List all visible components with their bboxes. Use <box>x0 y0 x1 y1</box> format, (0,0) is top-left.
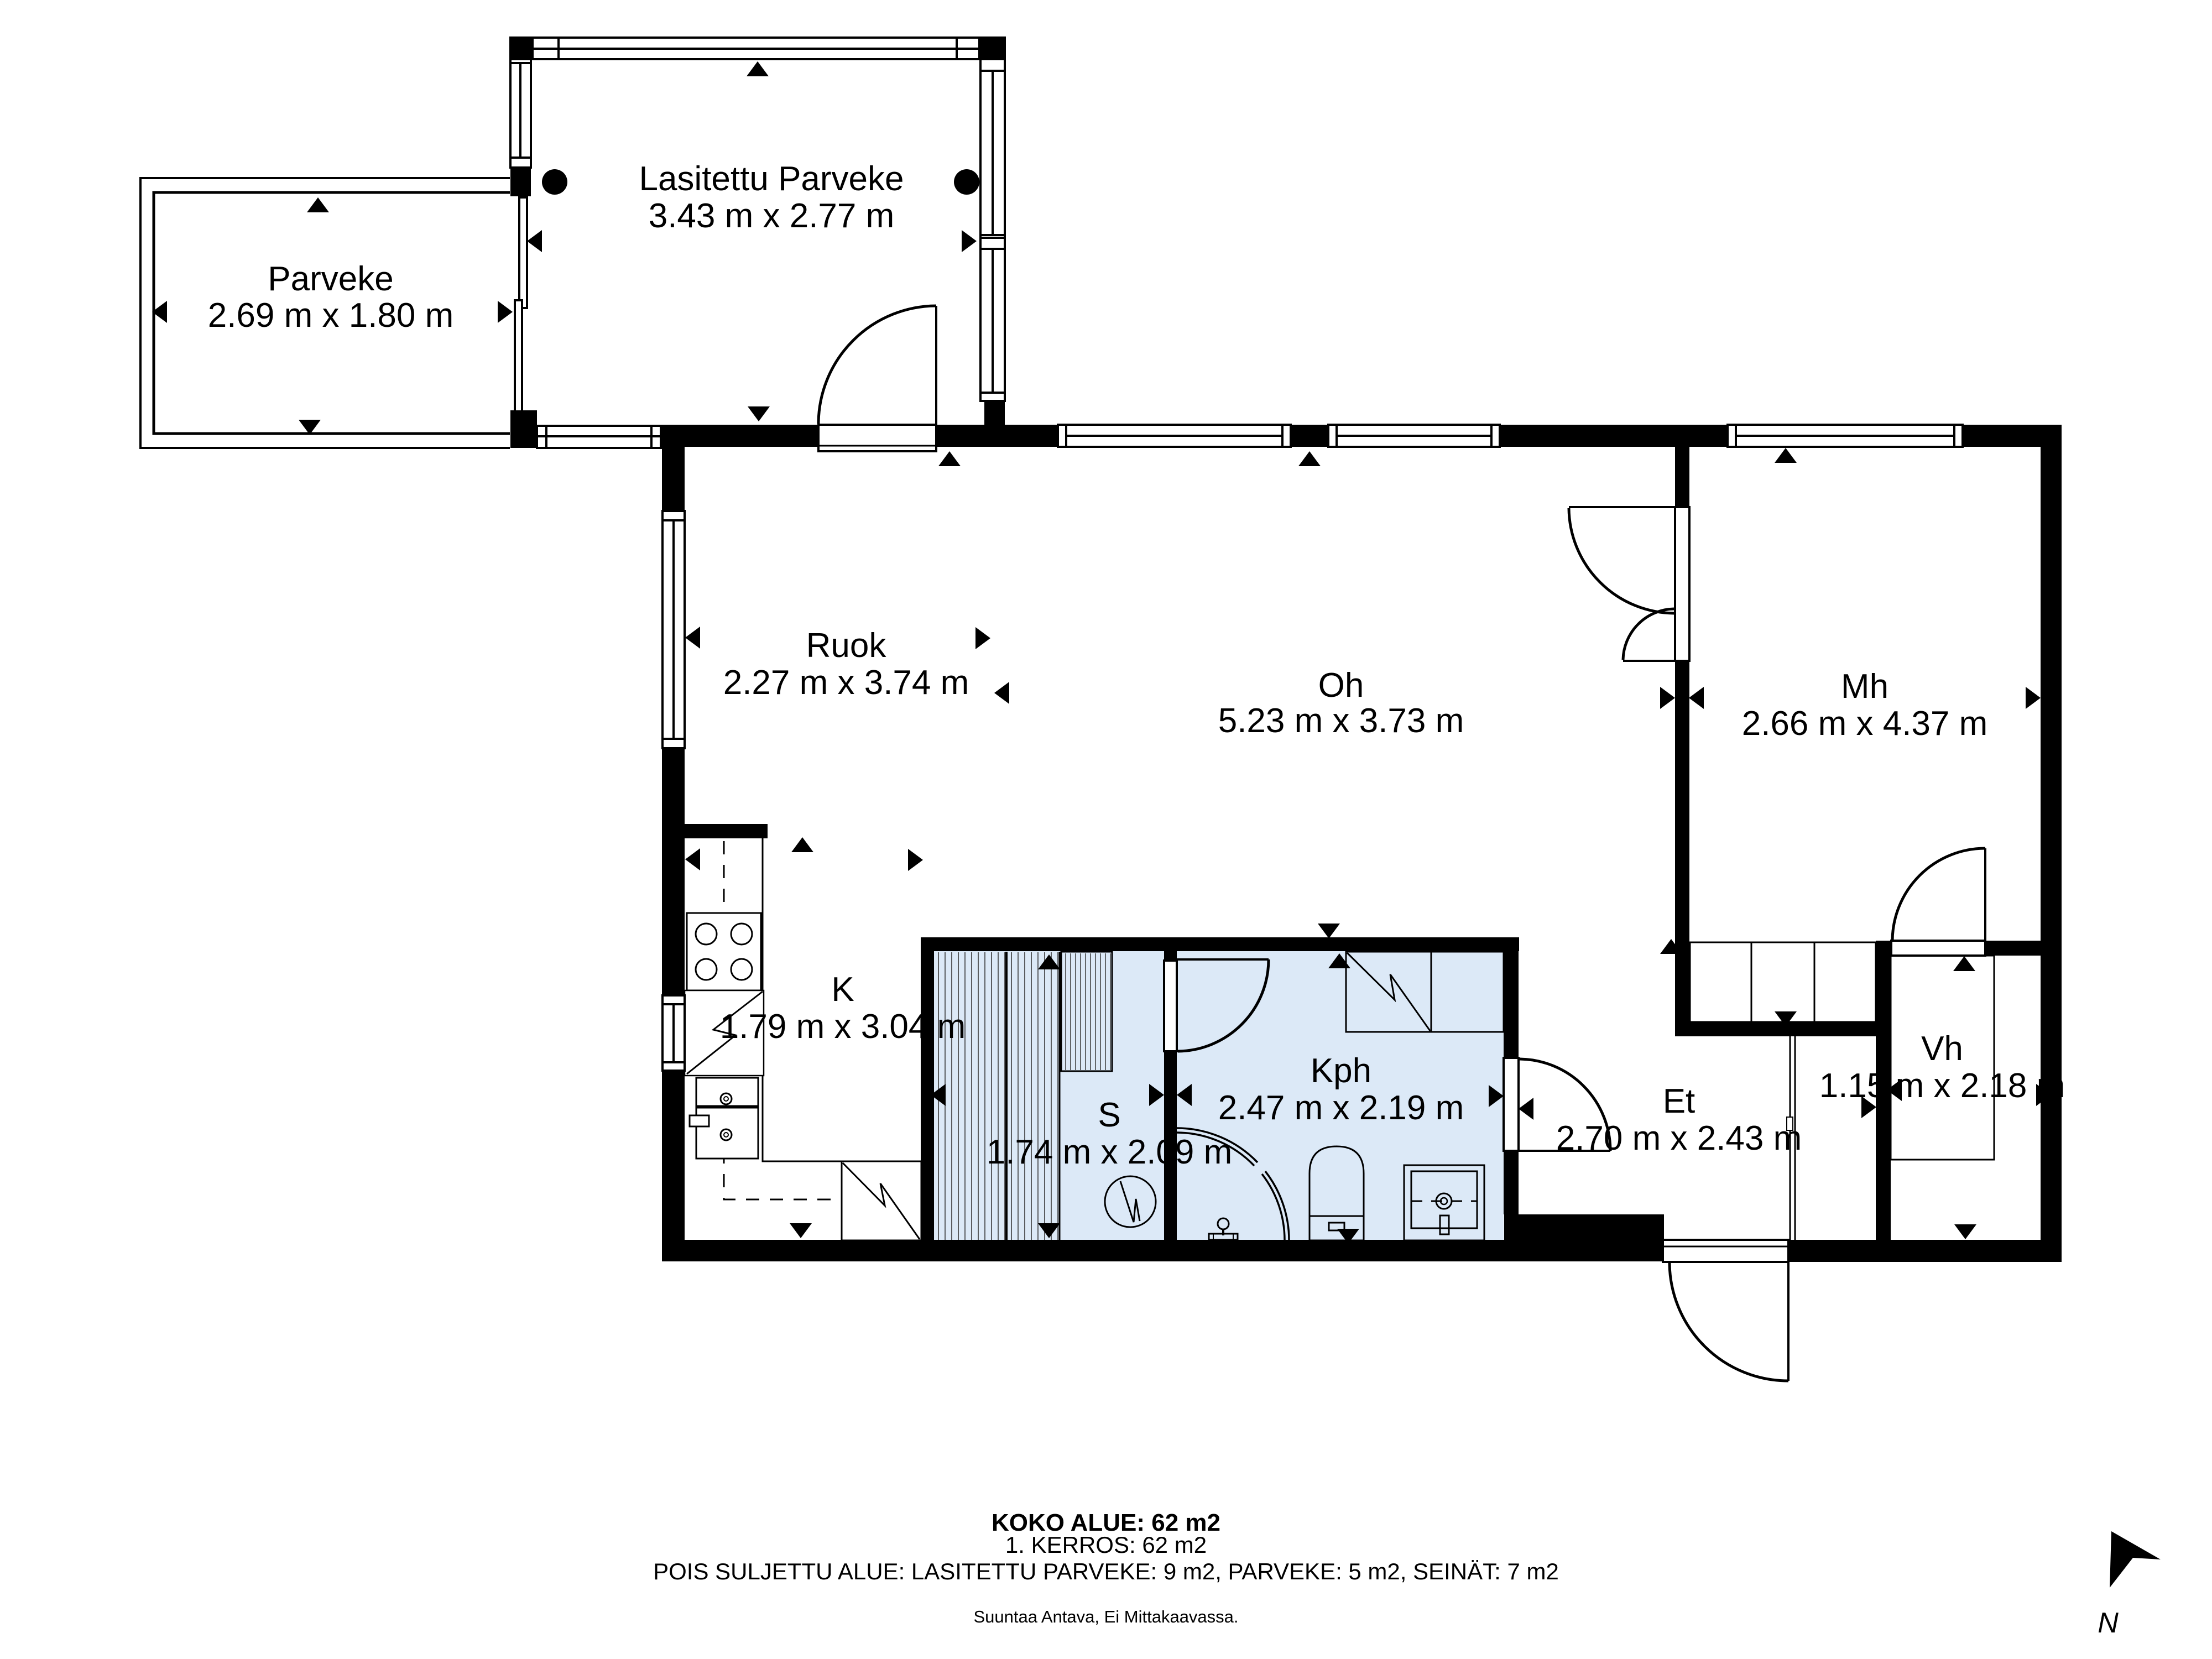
svg-text:N: N <box>2098 1607 2119 1639</box>
svg-text:Kph: Kph <box>1311 1052 1371 1090</box>
svg-text:2.66 m x 4.37 m: 2.66 m x 4.37 m <box>1742 705 1988 743</box>
svg-text:1.15 m x 2.18 m: 1.15 m x 2.18 m <box>1819 1067 2065 1105</box>
svg-text:K: K <box>831 971 854 1009</box>
svg-text:1.74 m x 2.09 m: 1.74 m x 2.09 m <box>987 1133 1233 1171</box>
svg-text:POIS SULJETTU ALUE: LASITETTU: POIS SULJETTU ALUE: LASITETTU PARVEKE: 9… <box>653 1558 1559 1584</box>
svg-text:3.43 m x 2.77 m: 3.43 m x 2.77 m <box>649 197 895 235</box>
svg-text:Ruok: Ruok <box>806 627 887 665</box>
svg-text:2.47 m x 2.19 m: 2.47 m x 2.19 m <box>1218 1089 1464 1127</box>
svg-text:Oh: Oh <box>1318 666 1364 705</box>
svg-text:Et: Et <box>1663 1082 1695 1120</box>
svg-text:5.23 m x 3.73 m: 5.23 m x 3.73 m <box>1218 702 1464 740</box>
svg-text:Mh: Mh <box>1841 667 1888 706</box>
svg-text:Parveke: Parveke <box>268 260 393 298</box>
svg-text:Lasitettu Parveke: Lasitettu Parveke <box>639 160 904 198</box>
svg-text:2.69 m x 1.80 m: 2.69 m x 1.80 m <box>208 296 454 335</box>
svg-text:Vh: Vh <box>1921 1030 1963 1068</box>
svg-text:S: S <box>1098 1096 1120 1134</box>
svg-text:2.27 m x 3.74 m: 2.27 m x 3.74 m <box>723 664 969 702</box>
svg-text:1. KERROS: 62 m2: 1. KERROS: 62 m2 <box>1005 1532 1207 1558</box>
svg-text:Suuntaa Antava, Ei Mittakaavas: Suuntaa Antava, Ei Mittakaavassa. <box>973 1607 1238 1626</box>
